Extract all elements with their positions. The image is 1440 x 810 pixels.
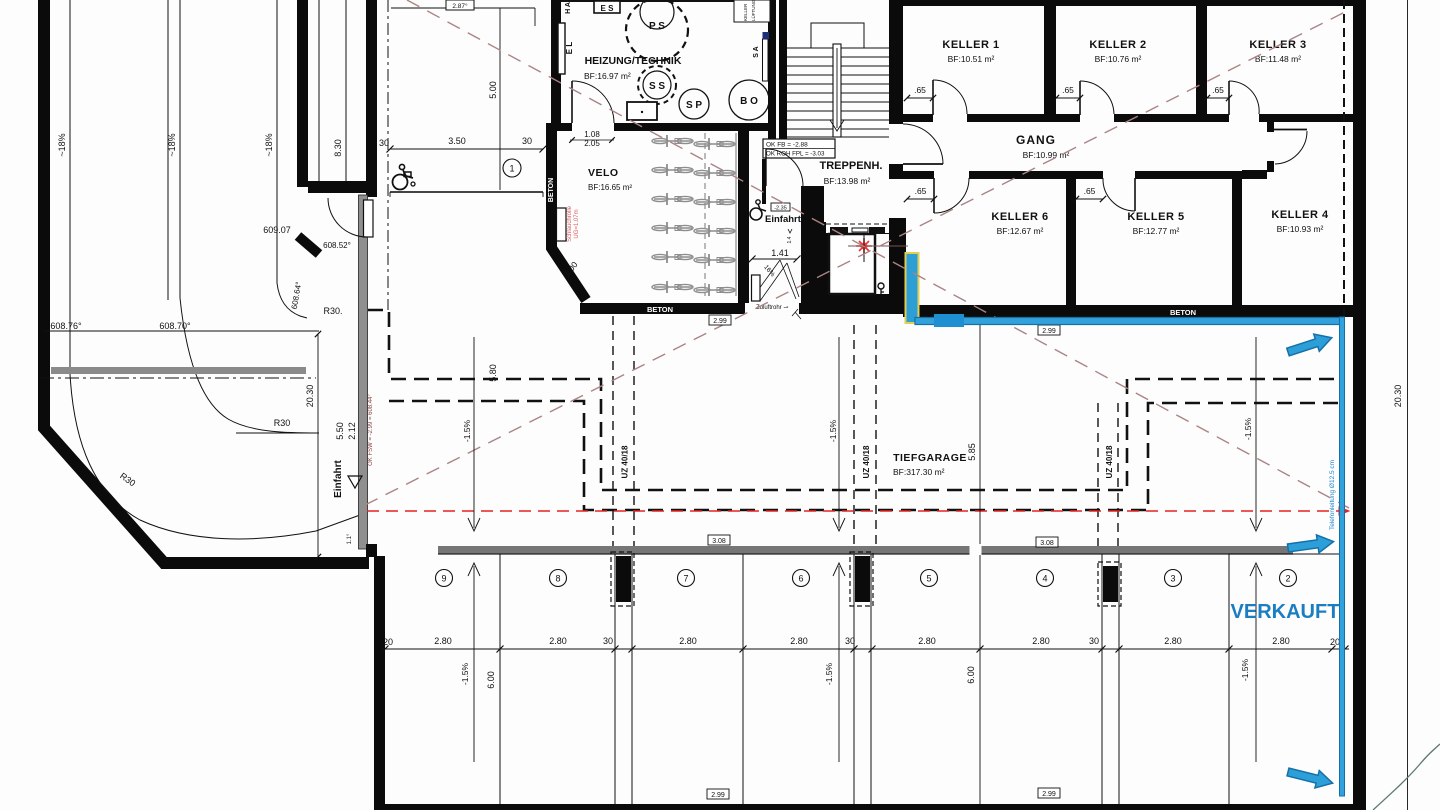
- svg-text:-1.5%: -1.5%: [462, 419, 472, 442]
- svg-text:30: 30: [845, 636, 855, 646]
- svg-text:8: 8: [555, 574, 560, 584]
- svg-text:KELLER: KELLER: [743, 3, 748, 21]
- svg-text:30: 30: [522, 136, 532, 146]
- svg-text:30: 30: [603, 636, 613, 646]
- svg-text:BETON: BETON: [1170, 308, 1196, 317]
- svg-text:2.99: 2.99: [1042, 328, 1056, 335]
- svg-text:VELO: VELO: [588, 167, 619, 179]
- svg-text:3.50: 3.50: [448, 136, 466, 146]
- svg-text:2.99: 2.99: [1042, 791, 1056, 798]
- svg-text:S P: S P: [686, 100, 702, 111]
- svg-text:2.80: 2.80: [679, 636, 697, 646]
- svg-text:Einfahrt: Einfahrt: [765, 214, 802, 225]
- svg-text:1: 1: [509, 164, 514, 174]
- svg-text:30: 30: [1089, 636, 1099, 646]
- svg-text:3.08: 3.08: [712, 538, 726, 545]
- svg-text:B O: B O: [740, 96, 758, 107]
- svg-text:BF:10.51 m²: BF:10.51 m²: [948, 54, 995, 64]
- svg-text:5.85: 5.85: [967, 443, 977, 461]
- svg-text:KELLER 2: KELLER 2: [1089, 39, 1146, 51]
- svg-text:BETON: BETON: [548, 178, 555, 202]
- svg-text:KELLER 1: KELLER 1: [942, 39, 999, 51]
- svg-text:~18%: ~18%: [57, 133, 67, 156]
- svg-text:BF:10.93 m²: BF:10.93 m²: [1277, 224, 1324, 234]
- svg-text:BETON: BETON: [647, 305, 673, 314]
- svg-text:-1.5%: -1.5%: [1243, 417, 1253, 440]
- svg-text:5.00: 5.00: [488, 81, 498, 99]
- svg-text:2.80: 2.80: [790, 636, 808, 646]
- svg-text:2: 2: [1285, 574, 1290, 584]
- svg-text:1.4: 1.4: [787, 236, 793, 243]
- svg-text:GANG: GANG: [1016, 133, 1056, 147]
- svg-text:2.99: 2.99: [713, 318, 727, 325]
- svg-text:-1.5%: -1.5%: [824, 662, 834, 685]
- svg-text:UZ 40/18: UZ 40/18: [621, 445, 630, 478]
- svg-text:TREPPENH.: TREPPENH.: [820, 160, 883, 172]
- svg-text:6: 6: [798, 574, 803, 584]
- svg-text:9: 9: [441, 574, 446, 584]
- svg-text:LÜFTUNG: LÜFTUNG: [750, 0, 756, 21]
- svg-text:1.1°: 1.1°: [347, 533, 353, 544]
- svg-text:BF:10.99 m²: BF:10.99 m²: [1023, 150, 1070, 160]
- svg-text:Telefonleitung Ø12.5 cm: Telefonleitung Ø12.5 cm: [1329, 460, 1336, 530]
- svg-text:2.80: 2.80: [1164, 636, 1182, 646]
- svg-text:BF:12.67 m²: BF:12.67 m²: [997, 226, 1044, 236]
- svg-text:608.76°: 608.76°: [50, 321, 82, 331]
- svg-text:~18%: ~18%: [264, 133, 274, 156]
- svg-text:2.80: 2.80: [549, 636, 567, 646]
- svg-text:S A: S A: [753, 46, 760, 57]
- svg-text:.65: .65: [1062, 85, 1074, 95]
- svg-text:S S: S S: [649, 81, 665, 92]
- svg-text:5.80: 5.80: [488, 364, 498, 382]
- svg-text:KELLER 5: KELLER 5: [1127, 211, 1184, 223]
- svg-text:5.50: 5.50: [335, 422, 345, 440]
- svg-text:20: 20: [1330, 637, 1340, 647]
- svg-text:2.80: 2.80: [918, 636, 936, 646]
- svg-text:BF:16.65 m²: BF:16.65 m²: [588, 183, 632, 192]
- svg-text:3: 3: [1170, 574, 1175, 584]
- svg-text:H A: H A: [565, 2, 572, 14]
- svg-text:Schlauchrolle: Schlauchrolle: [567, 205, 573, 242]
- svg-text:HEIZUNG/TECHNIK: HEIZUNG/TECHNIK: [585, 55, 682, 67]
- svg-text:-1.5%: -1.5%: [1240, 658, 1250, 681]
- svg-text:R30: R30: [274, 418, 291, 428]
- svg-text:VERKAUFT: VERKAUFT: [1231, 601, 1340, 623]
- svg-text:30: 30: [379, 138, 389, 148]
- svg-text:KELLER 6: KELLER 6: [991, 211, 1048, 223]
- svg-text:608.52°: 608.52°: [323, 241, 351, 250]
- svg-text:609.07: 609.07: [263, 225, 291, 235]
- svg-text:.65: .65: [1084, 186, 1096, 196]
- svg-text:OK ROH FPL = -3.03: OK ROH FPL = -3.03: [766, 151, 825, 158]
- svg-text:Einfahrt: Einfahrt: [333, 459, 344, 497]
- svg-text:E L: E L: [565, 42, 574, 55]
- svg-text:BF:11.48 m²: BF:11.48 m²: [1255, 54, 1301, 64]
- svg-text:1.41: 1.41: [771, 248, 789, 258]
- svg-text:~18%: ~18%: [167, 133, 177, 156]
- svg-text:2.87°: 2.87°: [452, 2, 468, 10]
- svg-text:BF:10.76 m²: BF:10.76 m²: [1095, 54, 1142, 64]
- svg-text:4: 4: [1042, 574, 1047, 584]
- svg-text:2.80: 2.80: [434, 636, 452, 646]
- svg-text:3.08: 3.08: [1040, 540, 1054, 547]
- svg-text:2.80: 2.80: [1272, 636, 1290, 646]
- svg-text:UZ 40/18: UZ 40/18: [1105, 445, 1114, 478]
- svg-text:UZ 40/18: UZ 40/18: [862, 445, 871, 478]
- svg-text:1.08: 1.08: [584, 130, 600, 139]
- svg-text:TIEFGARAGE: TIEFGARAGE: [893, 452, 967, 464]
- svg-text:8.30: 8.30: [333, 139, 343, 157]
- svg-text:.65: .65: [915, 186, 927, 196]
- svg-text:5: 5: [926, 574, 931, 584]
- svg-text:20.30: 20.30: [1393, 385, 1403, 408]
- svg-text:BF:12.77 m²: BF:12.77 m²: [1133, 226, 1180, 236]
- svg-text:OK FSW = -2.99 = 608.44°: OK FSW = -2.99 = 608.44°: [368, 394, 374, 466]
- svg-text:.65: .65: [1212, 85, 1224, 95]
- svg-text:608.70°: 608.70°: [159, 321, 191, 331]
- svg-text:2.99: 2.99: [711, 792, 725, 799]
- svg-text:KELLER 4: KELLER 4: [1271, 209, 1329, 221]
- svg-text:OK FB = -2.88: OK FB = -2.88: [766, 142, 808, 149]
- svg-text:BF:13.98 m²: BF:13.98 m²: [824, 176, 871, 186]
- svg-text:P S: P S: [649, 21, 665, 32]
- svg-text:20: 20: [383, 637, 393, 647]
- svg-text:R30.: R30.: [323, 306, 342, 316]
- svg-text:7: 7: [683, 574, 688, 584]
- svg-text:BF:317.30 m²: BF:317.30 m²: [893, 467, 945, 477]
- svg-text:6.00: 6.00: [966, 666, 976, 684]
- svg-text:E S: E S: [601, 4, 615, 13]
- svg-text:-1.5%: -1.5%: [460, 662, 470, 685]
- svg-text:.65: .65: [914, 85, 926, 95]
- svg-text:-2.35: -2.35: [774, 206, 787, 212]
- svg-text:2.80: 2.80: [1032, 636, 1050, 646]
- svg-text:-1.5%: -1.5%: [828, 419, 838, 442]
- svg-text:BF:16.97 m²: BF:16.97 m²: [584, 71, 631, 81]
- svg-text:6.00: 6.00: [486, 671, 496, 689]
- svg-text:2.12: 2.12: [347, 422, 357, 440]
- svg-text:UG=1.07m: UG=1.07m: [574, 209, 580, 238]
- svg-text:20.30: 20.30: [305, 385, 315, 408]
